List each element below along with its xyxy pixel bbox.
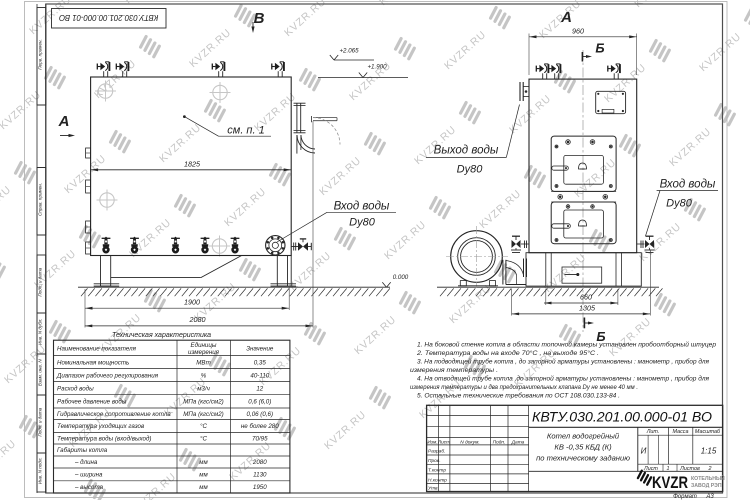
svg-text:KVZR: KVZR xyxy=(652,474,688,492)
svg-text:А3: А3 xyxy=(705,494,714,500)
svg-text:Dy80: Dy80 xyxy=(349,217,376,229)
svg-text:КВТУ.030.201.00.000-01 ВО: КВТУ.030.201.00.000-01 ВО xyxy=(532,410,712,425)
svg-text:– длина: – длина xyxy=(74,459,98,466)
svg-text:Масштаб: Масштаб xyxy=(695,429,721,435)
svg-text:2: 2 xyxy=(708,466,712,472)
svg-text:Лист: Лист xyxy=(643,466,658,472)
svg-text:2. Температура воды на входе: 2. Температура воды на входе 70°С , на в… xyxy=(416,350,599,357)
svg-text:1950: 1950 xyxy=(253,484,267,491)
svg-text:м3/ч: м3/ч xyxy=(197,385,210,392)
svg-text:Изм.: Изм. xyxy=(427,439,437,445)
svg-text:КВТУ.030.201.00.000-01 ВО: КВТУ.030.201.00.000-01 ВО xyxy=(59,13,158,22)
svg-text:– высота: – высота xyxy=(74,484,104,491)
svg-text:МПа (кгс/см2): МПа (кгс/см2) xyxy=(183,411,223,418)
svg-text:KVZR.RU: KVZR.RU xyxy=(607,316,653,360)
svg-text:Dy80: Dy80 xyxy=(666,198,693,210)
svg-text:по техническому заданию: по техническому заданию xyxy=(536,454,630,463)
svg-text:Разраб.: Разраб. xyxy=(428,449,445,455)
svg-text:не более 280: не более 280 xyxy=(241,423,279,430)
svg-text:Вход воды: Вход воды xyxy=(660,179,716,191)
svg-text:1900: 1900 xyxy=(184,298,200,307)
svg-text:+2.065: +2.065 xyxy=(339,48,359,55)
svg-text:°С: °С xyxy=(200,435,207,442)
svg-text:KVZR.RU: KVZR.RU xyxy=(282,0,328,39)
svg-text:960: 960 xyxy=(572,27,584,36)
svg-text:Диапазон рабочего регулировани: Диапазон рабочего регулирования xyxy=(56,372,159,379)
svg-text:KVZR.RU: KVZR.RU xyxy=(542,252,588,296)
svg-text:2080: 2080 xyxy=(189,315,206,324)
svg-text:KVZR.RU: KVZR.RU xyxy=(222,186,268,230)
svg-text:Взам. инв. N: Взам. инв. N xyxy=(37,359,42,386)
svg-text:KVZR.RU: KVZR.RU xyxy=(0,184,14,228)
svg-text:Подп.: Подп. xyxy=(493,439,506,445)
svg-text:1825: 1825 xyxy=(184,160,201,169)
svg-text:И: И xyxy=(641,447,647,456)
svg-text:А: А xyxy=(560,9,572,26)
svg-text:КОТЕЛЬНЫЙ: КОТЕЛЬНЫЙ xyxy=(691,474,725,482)
svg-text:Номинальная мощность: Номинальная мощность xyxy=(57,359,129,366)
svg-text:см. п. 1: см. п. 1 xyxy=(227,125,264,137)
svg-text:KVZR.RU: KVZR.RU xyxy=(0,438,19,482)
svg-text:Подп. и дата: Подп. и дата xyxy=(37,267,42,296)
svg-text:KVZR.RU: KVZR.RU xyxy=(697,31,743,75)
svg-text:KVZR.RU: KVZR.RU xyxy=(132,471,178,500)
svg-text:70/95: 70/95 xyxy=(252,435,268,442)
svg-text:измерения: измерения xyxy=(188,349,220,356)
svg-text:мм: мм xyxy=(199,484,208,491)
svg-text:KVZR.RU: KVZR.RU xyxy=(667,126,713,170)
svg-text:KVZR.RU: KVZR.RU xyxy=(637,221,683,265)
svg-text:В: В xyxy=(254,10,265,27)
svg-text:KVZR.RU: KVZR.RU xyxy=(442,29,488,73)
svg-text:Dy80: Dy80 xyxy=(457,164,484,176)
svg-text:Гидравлическое сопротивление к: Гидравлическое сопротивление котла xyxy=(57,411,171,418)
svg-text:Н.контр: Н.контр xyxy=(428,478,447,484)
svg-text:N докум.: N докум. xyxy=(460,439,479,445)
svg-text:Справ. примен.: Справ. примен. xyxy=(37,183,42,216)
svg-text:1:15: 1:15 xyxy=(701,447,717,456)
svg-text:Выход воды: Выход воды xyxy=(434,145,499,157)
svg-text:А: А xyxy=(58,113,70,130)
svg-text:КВ -0,35 КБД (К): КВ -0,35 КБД (К) xyxy=(554,443,612,452)
svg-text:мм: мм xyxy=(199,472,208,479)
svg-text:Б: Б xyxy=(595,41,604,56)
svg-text:KVZR.RU: KVZR.RU xyxy=(382,219,428,263)
svg-text:5. Остальные технические треб: 5. Остальные технические требования по О… xyxy=(417,392,620,399)
svg-text:Формат: Формат xyxy=(673,494,697,500)
svg-text:Котел водогрейный: Котел водогрейный xyxy=(547,432,620,441)
svg-text:Т.контр: Т.контр xyxy=(428,468,446,474)
svg-text:KVZR.RU: KVZR.RU xyxy=(572,157,618,201)
svg-text:измерения температуры и два пр: измерения температуры и два предохраните… xyxy=(410,384,638,391)
svg-text:Наименование показателя: Наименование показателя xyxy=(57,345,137,352)
svg-text:Масса: Масса xyxy=(673,429,689,435)
svg-text:12: 12 xyxy=(256,385,263,392)
svg-text:1: 1 xyxy=(667,466,670,472)
svg-text:Подп. и дата: Подп. и дата xyxy=(37,407,42,436)
svg-text:Техническая характеристика: Техническая характеристика xyxy=(112,332,211,339)
svg-text:Лист: Лист xyxy=(437,439,450,445)
svg-text:4. На отводящей трубе котла ,: 4. На отводящей трубе котла ,до запорной… xyxy=(417,375,710,382)
svg-text:KVZR.RU: KVZR.RU xyxy=(122,0,168,6)
svg-text:МВт: МВт xyxy=(196,359,210,366)
svg-text:Перв. примен.: Перв. примен. xyxy=(37,39,42,70)
svg-text:KVZR.RU: KVZR.RU xyxy=(317,155,363,199)
svg-text:Значение: Значение xyxy=(246,345,274,352)
svg-text:Дата: Дата xyxy=(511,439,525,445)
svg-text:Температура уходящих газов: Температура уходящих газов xyxy=(57,423,145,430)
svg-text:Лит.: Лит. xyxy=(646,429,660,435)
svg-text:KVZR.RU: KVZR.RU xyxy=(447,283,493,327)
svg-text:мм: мм xyxy=(199,459,208,466)
svg-text:1305: 1305 xyxy=(579,304,596,313)
svg-text:0,6 (6,0): 0,6 (6,0) xyxy=(248,399,271,406)
svg-text:измерения температуры .: измерения температуры . xyxy=(410,367,498,374)
svg-text:3. На подводящей трубе котла: 3. На подводящей трубе котла , до запорн… xyxy=(417,358,710,365)
svg-text:40-110: 40-110 xyxy=(250,372,269,379)
svg-text:Расход воды: Расход воды xyxy=(57,385,94,392)
svg-text:2080: 2080 xyxy=(252,459,267,466)
svg-text:– ширина: – ширина xyxy=(74,472,103,479)
svg-text:°С: °С xyxy=(200,423,207,430)
svg-text:Инв. N дубл.: Инв. N дубл. xyxy=(37,318,42,345)
svg-text:Инв. N подл.: Инв. N подл. xyxy=(37,457,42,484)
svg-text:660: 660 xyxy=(580,293,592,302)
svg-text:1130: 1130 xyxy=(253,472,267,479)
svg-text:Вход воды: Вход воды xyxy=(334,201,390,213)
svg-text:Пров.: Пров. xyxy=(428,458,441,464)
svg-text:ЗАВОД РЭП: ЗАВОД РЭП xyxy=(691,483,722,489)
svg-text:МПа (кгс/см2): МПа (кгс/см2) xyxy=(183,399,223,406)
svg-text:KVZR.RU: KVZR.RU xyxy=(507,93,553,137)
svg-text:Рабочее давление воды: Рабочее давление воды xyxy=(57,399,127,406)
svg-text:Температура воды (вход/выход): Температура воды (вход/выход) xyxy=(57,435,151,442)
svg-text:Габариты котла: Габариты котла xyxy=(57,447,108,454)
svg-text:KVZR.RU: KVZR.RU xyxy=(477,188,523,232)
svg-text:+1.900: +1.900 xyxy=(367,64,387,71)
svg-text:KVZR.RU: KVZR.RU xyxy=(352,314,398,358)
svg-text:KVZR.RU: KVZR.RU xyxy=(322,409,368,453)
svg-text:%: % xyxy=(201,372,207,379)
svg-text:0.000: 0.000 xyxy=(393,274,409,281)
svg-text:0,06 (0,6): 0,06 (0,6) xyxy=(247,411,273,418)
svg-text:Утв.: Утв. xyxy=(428,486,439,492)
svg-text:KVZR.RU: KVZR.RU xyxy=(187,27,233,71)
svg-text:1. На боковой стенке котла в: 1. На боковой стенке котла в области топ… xyxy=(417,341,717,348)
svg-text:Листов: Листов xyxy=(679,466,700,472)
svg-text:0,35: 0,35 xyxy=(254,359,267,366)
